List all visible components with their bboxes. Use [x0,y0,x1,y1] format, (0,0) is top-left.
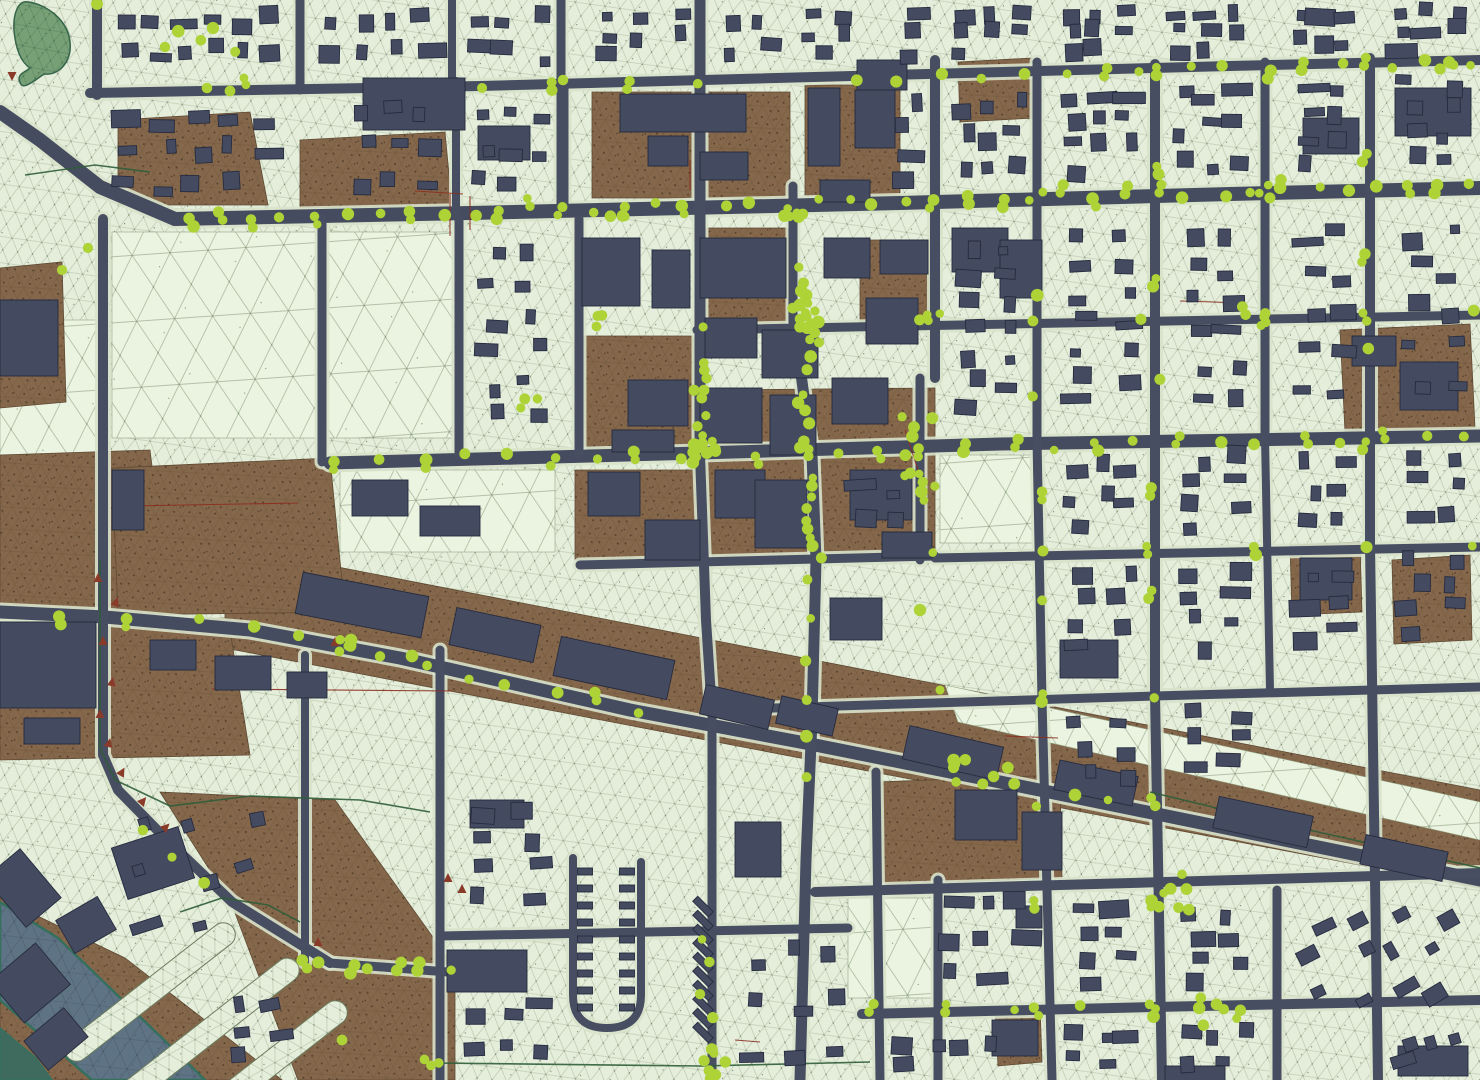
network-node-dot [413,956,425,968]
network-node-dot [1037,545,1048,556]
network-node-dot [1175,431,1185,441]
network-node-dot [55,619,67,631]
network-node-dot [1216,60,1227,71]
network-node-dot [160,42,170,52]
network-node-dot [374,454,385,465]
network-node-dot [1338,58,1349,69]
network-node-dot [1122,181,1133,192]
network-node-dot [1069,789,1082,802]
network-node-dot [957,445,970,458]
network-node-dot [680,209,689,218]
map-viewport[interactable] [0,0,1480,1080]
network-node-dot [1135,314,1146,325]
network-node-dot [1361,541,1373,553]
network-node-dot [793,211,805,223]
network-node-dot [1357,156,1368,167]
network-node-dot [310,212,320,222]
network-node-dot [1183,904,1195,916]
network-node-dot [1198,1019,1209,1030]
network-node-dot [800,655,811,666]
network-node-dot [1012,434,1023,445]
network-node-dot [1150,693,1159,702]
network-node-dot [1193,1002,1205,1014]
network-node-dot [963,198,975,210]
network-node-dot [1378,426,1387,435]
network-node-dot [406,650,419,663]
network-node-dot [420,462,431,473]
network-node-dot [1029,1002,1039,1012]
network-node-dot [546,85,557,96]
network-node-dot [1028,316,1039,327]
network-node-dot [1002,762,1014,774]
network-node-dot [687,456,700,469]
network-node-dot [806,614,815,623]
network-node-dot [890,76,902,88]
network-node-dot [710,446,721,457]
network-node-dot [525,202,534,211]
network-node-dot [362,963,373,974]
network-node-dot [1443,56,1455,68]
network-node-dot [344,967,357,980]
network-node-dot [121,622,130,631]
network-node-dot [1142,542,1151,551]
network-node-dot [708,437,717,446]
network-node-dot [207,22,219,34]
network-node-dot [977,74,987,84]
network-node-dot [676,453,687,464]
network-node-dot [593,454,602,463]
network-node-dot [438,209,451,222]
network-node-dot [213,206,224,217]
network-node-dot [1419,54,1432,67]
network-node-dot [248,223,258,233]
network-node-dot [935,685,944,694]
network-node-dot [1387,63,1397,73]
network-node-dot [754,460,763,469]
network-node-dot [1357,444,1368,455]
network-node-dot [692,440,703,451]
network-node-dot [1008,778,1020,790]
network-node-dot [592,322,602,332]
network-node-dot [1359,61,1369,71]
network-node-dot [375,651,385,661]
network-node-dot [800,730,813,743]
network-node-dot [1264,192,1275,203]
network-node-dot [1029,896,1038,905]
network-node-dot [925,203,934,212]
network-node-dot [516,403,525,412]
network-node-dot [707,1012,718,1023]
network-node-dot [814,195,823,204]
network-node-dot [1468,305,1480,317]
network-node-dot [1298,57,1309,68]
network-node-dot [1075,1000,1086,1011]
network-node-dot [951,777,961,787]
network-node-dot [1143,550,1152,559]
network-node-dot [1187,62,1196,71]
network-node-dot [293,630,304,641]
network-node-dot [337,1035,348,1046]
network-node-dot [802,312,812,322]
network-node-dot [801,503,811,513]
network-node-dot [698,431,707,440]
network-node-dot [701,373,711,383]
network-node-dot [198,877,210,889]
network-node-dot [869,999,879,1009]
network-node-dot [83,243,93,253]
network-node-dot [1146,903,1155,912]
network-node-dot [312,956,324,968]
network-node-dot [593,311,603,321]
network-node-dot [57,265,67,275]
network-node-dot [1038,689,1047,698]
network-node-dot [1058,179,1069,190]
network-node-dot [196,35,207,46]
network-node-dot [335,635,345,645]
network-node-dot [344,640,356,652]
network-node-dot [699,385,710,396]
network-node-dot [202,83,213,94]
network-node-dot [814,337,824,347]
network-node-dot [1063,69,1072,78]
network-node-dot [915,485,928,498]
network-node-dot [313,220,321,228]
network-node-dot [589,208,599,218]
network-node-dot [1215,436,1227,448]
network-node-dot [1092,445,1104,457]
network-node-dot [709,1049,718,1058]
network-node-dot [459,448,470,459]
network-node-dot [1099,71,1109,81]
network-node-dot [551,453,561,463]
network-node-dot [1264,181,1273,190]
network-node-dot [589,687,600,698]
network-node-dot [523,194,532,203]
network-node-dot [498,679,510,691]
network-node-dot [546,461,556,471]
network-node-dot [1303,439,1313,449]
network-node-dot [1195,992,1206,1003]
network-node-dot [242,80,251,89]
network-node-dot [1037,486,1048,497]
network-node-dot [901,197,911,207]
network-node-dot [1370,180,1383,193]
network-node-dot [1128,436,1138,446]
network-node-dot [924,316,933,325]
network-node-dot [988,771,999,782]
network-node-dot [1275,174,1286,185]
network-node-dot [1255,189,1264,198]
network-node-dot [803,417,815,429]
network-node-dot [1357,257,1366,266]
network-node-dot [915,470,924,479]
network-node-dot [692,421,702,431]
network-node-dot [1150,801,1161,812]
network-node-dot [1171,440,1180,449]
network-node-dot [519,393,530,404]
network-node-dot [802,695,812,705]
network-node-dot [977,778,988,789]
network-node-dot [1177,870,1186,879]
network-node-dot [557,202,567,212]
network-node-dot [447,966,456,975]
network-node-dot [897,412,906,421]
network-node-dot [1262,73,1274,85]
network-node-dot [1134,67,1143,76]
network-node-dot [1428,187,1440,199]
network-node-dot [1145,490,1155,500]
network-node-dot [816,552,827,563]
city-mesh-map [0,0,1480,1080]
network-node-dot [1245,188,1254,197]
network-node-dot [651,198,661,208]
network-node-dot [833,448,843,458]
network-node-dot [905,468,916,479]
network-node-dot [876,454,885,463]
network-node-dot [533,394,543,404]
network-node-dot [1150,69,1162,81]
network-node-dot [997,201,1009,213]
network-node-dot [699,1055,710,1066]
network-node-dot [230,47,240,57]
network-node-dot [1316,183,1325,192]
network-node-dot [846,195,855,204]
network-node-dot [187,220,200,233]
network-node-dot [420,1055,430,1065]
network-node-dot [959,754,971,766]
network-node-dot [689,385,700,396]
network-node-dot [1362,316,1371,325]
network-node-dot [1147,280,1159,292]
network-node-dot [1143,593,1154,604]
network-node-dot [1237,301,1248,312]
network-node-dot [1468,542,1477,551]
network-node-dot [806,480,817,491]
network-node-dot [225,86,236,97]
network-node-dot [798,277,809,288]
network-node-dot [698,935,707,944]
network-node-dot [806,533,815,542]
network-node-dot [335,647,345,657]
network-node-dot [793,299,806,312]
network-node-dot [751,452,760,461]
network-node-dot [926,412,938,424]
network-node-dot [422,661,432,671]
network-node-dot [930,482,939,491]
network-node-dot [936,309,944,317]
network-node-dot [801,322,813,334]
network-node-dot [1154,374,1165,385]
network-node-dot [704,957,714,967]
network-node-dot [1019,68,1031,80]
network-node-dot [865,198,877,210]
network-node-dot [908,421,920,433]
network-node-dot [342,208,354,220]
network-node-dot [778,210,790,222]
network-node-dot [622,84,632,94]
network-node-dot [704,1065,715,1076]
network-node-dot [914,604,926,616]
network-node-dot [803,451,813,461]
network-node-dot [851,74,863,86]
network-node-dot [918,477,928,487]
network-node-dot [329,465,338,474]
network-node-dot [1028,391,1038,401]
network-node-dot [464,675,473,684]
network-node-dot [558,75,569,86]
network-node-dot [1335,438,1346,449]
network-node-dot [1156,180,1166,190]
network-node-dot [631,455,640,464]
network-node-dot [1038,188,1047,197]
network-node-dot [376,209,386,219]
network-node-dot [802,575,812,585]
network-node-dot [940,1007,950,1017]
network-node-dot [194,614,204,624]
network-node-dot [1211,998,1223,1010]
network-node-dot [406,215,415,224]
network-node-dot [928,548,937,557]
network-node-dot [701,411,710,420]
network-node-dot [1459,432,1469,442]
network-node-dot [477,83,487,93]
network-node-dot [1466,61,1475,70]
network-node-dot [1220,190,1232,202]
network-node-dot [794,263,803,272]
network-node-dot [802,772,812,782]
network-node-dot [1358,308,1367,317]
network-node-dot [1152,162,1161,171]
network-node-dot [1010,1006,1019,1015]
network-node-dot [296,954,308,966]
network-node-dot [1147,1010,1160,1023]
network-node-dot [1104,796,1113,805]
network-node-dot [936,68,948,80]
network-node-dot [802,364,813,375]
network-node-dot [743,197,755,209]
network-node-dot [1261,317,1271,327]
network-node-dot [1164,883,1176,895]
network-node-dot [804,350,817,363]
network-node-dot [1250,549,1263,562]
network-node-dot [634,708,644,718]
network-node-dot [801,516,811,526]
network-node-dot [721,200,732,211]
network-node-dot [138,825,148,835]
network-node-dot [605,210,617,222]
network-node-dot [1173,902,1184,913]
network-node-dot [617,212,626,221]
network-node-dot [1181,883,1193,895]
network-node-dot [810,306,819,315]
network-node-dot [942,1000,951,1009]
network-node-dot [1176,191,1189,204]
network-node-dot [470,210,482,222]
network-node-dot [1248,438,1260,450]
network-node-dot [920,496,929,505]
network-node-dot [1025,196,1034,205]
network-node-dot [807,492,816,501]
network-node-dot [1405,189,1415,199]
network-node-dot [553,211,562,220]
network-node-dot [900,449,912,461]
network-node-dot [1145,999,1155,1009]
network-node-dot [1422,431,1432,441]
network-node-dot [693,79,703,89]
network-node-dot [799,404,811,416]
network-node-dot [948,762,959,773]
network-node-dot [695,989,705,999]
network-node-dot [168,853,177,862]
network-node-dot [172,25,185,38]
network-node-dot [1464,179,1474,189]
network-node-dot [1343,184,1355,196]
network-node-dot [720,1056,731,1067]
network-node-dot [1235,1005,1246,1016]
network-node-dot [1050,446,1059,455]
network-node-dot [552,687,564,699]
network-node-dot [913,452,923,462]
network-node-dot [812,316,825,329]
network-node-dot [1037,595,1047,605]
network-node-dot [395,957,407,969]
network-node-dot [501,448,513,460]
network-node-dot [274,212,284,222]
network-node-dot [1363,343,1375,355]
network-node-dot [1380,434,1389,443]
network-node-dot [1032,802,1041,811]
network-node-dot [434,1058,444,1068]
network-node-dot [490,213,502,225]
network-node-dot [699,322,708,331]
network-node-dot [1091,202,1101,212]
network-node-dot [1031,289,1044,302]
network-node-dot [248,620,261,633]
network-node-dot [1034,1011,1043,1020]
